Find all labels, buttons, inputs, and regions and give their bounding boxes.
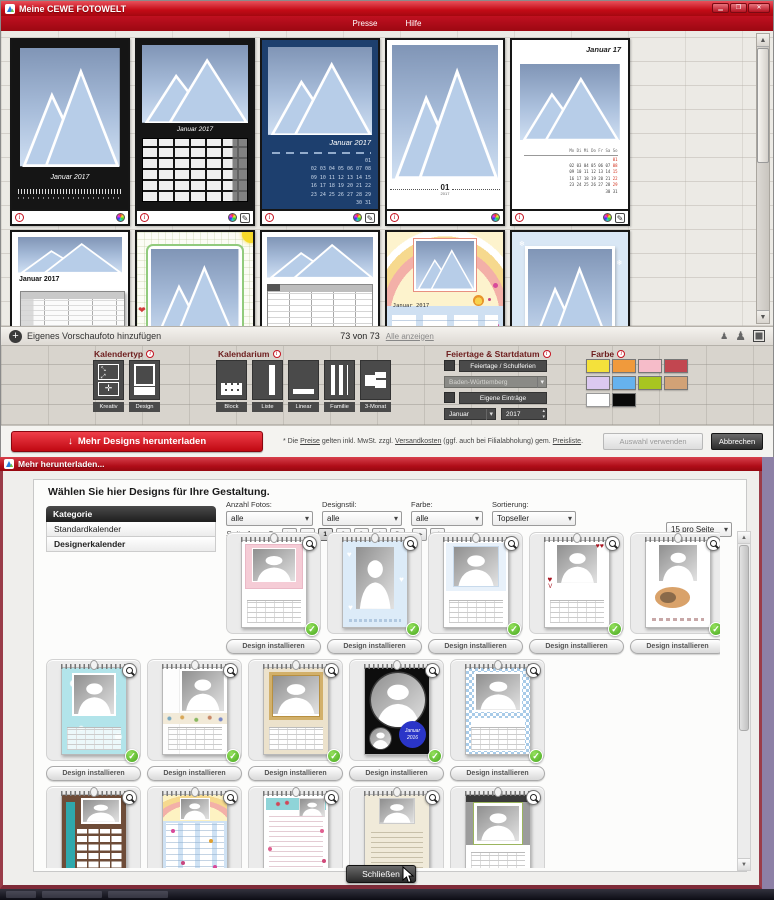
scrollbar-thumb[interactable] <box>757 48 769 163</box>
zoom-design-button[interactable] <box>425 790 440 805</box>
filter-3monat-label[interactable]: 3-Monat <box>360 402 391 412</box>
use-selection-button[interactable]: Auswahl verwenden <box>603 433 703 450</box>
hanger-ring <box>191 660 199 670</box>
show-all-link[interactable]: Alle anzeigen <box>386 332 434 341</box>
start-year-spinner[interactable]: 2017 <box>501 408 547 420</box>
info-icon[interactable]: i <box>140 213 149 222</box>
design-card[interactable]: ✓ <box>450 659 545 761</box>
hanger-ring <box>674 533 682 543</box>
custom-entries-checkbox[interactable] <box>444 392 455 403</box>
calendar-template[interactable]: ❄❄❄❄i✎ <box>510 230 630 326</box>
dialog-scrollbar[interactable]: ▲ ▼ <box>737 531 751 871</box>
filter-3monat[interactable] <box>360 360 391 400</box>
design-card[interactable] <box>450 786 545 868</box>
color-wheel-icon[interactable] <box>353 213 362 222</box>
zoom-design-button[interactable] <box>403 536 418 551</box>
design-card[interactable]: ♥♥♥✓ <box>327 532 422 634</box>
scrollbar-thumb[interactable] <box>739 545 749 731</box>
menu-presse[interactable]: Presse <box>353 19 378 28</box>
menu-hilfe[interactable]: Hilfe <box>405 19 421 28</box>
filter-label: Sortierung: <box>492 500 576 509</box>
scroll-up-icon[interactable]: ▲ <box>738 532 750 544</box>
title-bar[interactable]: Meine CEWE FOTOWELT ▁ ❐ ✕ <box>1 1 773 16</box>
download-more-designs-button[interactable]: ↓Mehr Designs herunterladen <box>11 431 263 452</box>
color-swatch[interactable] <box>612 359 636 373</box>
scroll-down-icon[interactable]: ▼ <box>738 858 750 870</box>
edit-icon[interactable]: ✎ <box>240 213 250 223</box>
filter-linear-label[interactable]: Linear <box>288 402 319 412</box>
category-header: Kategorie <box>46 506 216 522</box>
hanger-ring <box>270 533 278 543</box>
installed-check-icon: ✓ <box>327 749 341 763</box>
designstil-select[interactable]: alle <box>322 511 402 526</box>
template-grid-area: Januar 2017iJanuar 2017i✎Januar 201701 0… <box>1 31 773 326</box>
download-dialog: Mehr herunterladen... Wählen Sie hier De… <box>0 457 762 889</box>
download-icon: ↓ <box>68 436 73 447</box>
filter-linear[interactable] <box>288 360 319 400</box>
magnifier-icon <box>227 667 234 674</box>
zoom-design-button[interactable] <box>526 790 541 805</box>
color-swatch[interactable] <box>638 376 662 390</box>
holidays-button[interactable]: Feiertage / Schulferien <box>459 360 547 372</box>
calendar-template[interactable]: 012017i <box>385 38 505 226</box>
filter-label: Anzahl Fotos: <box>226 500 313 509</box>
dialog-panel: Wählen Sie hier Designs für Ihre Gestalt… <box>33 479 747 872</box>
install-design-button[interactable]: Design installieren <box>248 766 343 781</box>
install-design-button[interactable]: Design installieren <box>147 766 242 781</box>
color-wheel-icon[interactable] <box>603 213 612 222</box>
filter-liste-label[interactable]: Liste <box>252 402 283 412</box>
region-select[interactable]: Baden-Württemberg <box>444 376 547 388</box>
design-card[interactable]: ✓ <box>630 532 720 634</box>
single-view-icon[interactable] <box>753 330 765 342</box>
color-swatch[interactable] <box>664 359 688 373</box>
calendar-template[interactable]: ❤i✎ <box>135 230 255 326</box>
install-design-button[interactable]: Design installieren <box>349 766 444 781</box>
zoom-design-button[interactable] <box>425 663 440 678</box>
price-note: * Die Preise gelten inkl. MwSt. zzgl. Ve… <box>271 438 595 445</box>
scrollbar-vertical[interactable]: ▲ ▼ <box>756 33 770 324</box>
calendar-template[interactable]: Januar 2017i✎ <box>135 38 255 226</box>
magnifier-icon <box>508 540 515 547</box>
color-wheel-icon[interactable] <box>491 213 500 222</box>
zoom-design-button[interactable] <box>324 663 339 678</box>
taskbar[interactable] <box>0 889 774 900</box>
installed-check-icon: ✓ <box>428 749 442 763</box>
filter-familie[interactable] <box>324 360 355 400</box>
color-swatch[interactable] <box>586 393 610 407</box>
info-icon[interactable]: i <box>390 213 399 222</box>
hanger-ring <box>494 787 502 797</box>
kalendarium-label: Kalendariumi <box>218 349 281 359</box>
add-preview-photo-label[interactable]: Eigenes Vorschaufoto hinzufügen <box>27 331 161 341</box>
custom-entries-button[interactable]: Eigene Einträge <box>459 392 547 404</box>
thumbnail-small-icon[interactable]: ♟ <box>720 332 728 341</box>
magnifier-icon <box>710 540 717 547</box>
design-card[interactable]: Januar2016✓ <box>349 659 444 761</box>
preisliste-link[interactable]: Preisliste <box>553 438 581 445</box>
app-icon <box>5 4 15 14</box>
design-card[interactable]: ✓ <box>46 659 141 761</box>
magnifier-icon <box>306 540 313 547</box>
hanger-ring <box>90 660 98 670</box>
magnifier-icon <box>328 794 335 801</box>
filter-design-label[interactable]: Design <box>129 402 160 412</box>
edit-icon[interactable]: ✎ <box>365 213 375 223</box>
filter-liste[interactable] <box>252 360 283 400</box>
magnifier-icon <box>609 540 616 547</box>
magnifier-icon <box>530 794 537 801</box>
maximize-button[interactable]: ❐ <box>730 3 747 13</box>
info-icon[interactable]: i <box>146 350 154 358</box>
versandkosten-link[interactable]: Versandkosten <box>395 438 441 445</box>
info-icon[interactable]: i <box>265 213 274 222</box>
installed-check-icon: ✓ <box>507 622 521 636</box>
hanger-ring <box>573 533 581 543</box>
install-design-button[interactable]: Design installieren <box>46 766 141 781</box>
color-wheel-icon[interactable] <box>116 213 125 222</box>
feiertage-label: Feiertage & Startdatumi <box>446 349 551 359</box>
window-title: Meine CEWE FOTOWELT <box>19 4 126 14</box>
design-tile[interactable]: ♥♥♥✓Design installieren <box>327 532 422 654</box>
design-filters: Anzahl Fotos:alle Designstil:alle Farbe:… <box>226 500 576 526</box>
installed-check-icon: ✓ <box>305 622 319 636</box>
color-swatch[interactable] <box>612 393 636 407</box>
info-icon[interactable]: i <box>543 350 551 358</box>
design-tile[interactable]: ✓Design installieren <box>46 659 141 781</box>
installed-check-icon: ✓ <box>709 622 720 636</box>
design-card[interactable] <box>349 786 444 868</box>
color-swatch[interactable] <box>612 376 636 390</box>
zoom-design-button[interactable] <box>122 663 137 678</box>
design-card[interactable] <box>147 786 242 868</box>
window1-footer: ↓Mehr Designs herunterladen * Die Preise… <box>1 425 773 457</box>
install-design-button[interactable]: Design installieren <box>428 639 523 654</box>
installed-check-icon: ✓ <box>608 622 622 636</box>
calendar-template[interactable]: i✎ <box>260 230 380 326</box>
template-grid: Januar 2017iJanuar 2017i✎Januar 201701 0… <box>1 31 773 326</box>
design-tile[interactable]: ✓Design installieren <box>147 659 242 781</box>
design-tile[interactable]: Design installieren <box>450 786 545 868</box>
filter-label: Farbe: <box>411 500 483 509</box>
close-button[interactable]: ✕ <box>748 3 770 13</box>
holidays-checkbox[interactable] <box>444 360 455 371</box>
installed-check-icon: ✓ <box>529 749 543 763</box>
design-card[interactable]: ✓ <box>226 532 321 634</box>
filter-kreativ[interactable]: ✛ <box>93 360 124 400</box>
magnifier-icon <box>429 794 436 801</box>
design-tile[interactable]: ✓Design installieren <box>248 659 343 781</box>
hanger-ring <box>494 660 502 670</box>
design-card[interactable]: ✓ <box>147 659 242 761</box>
dialog-title: Mehr herunterladen... <box>18 459 104 469</box>
hanger-ring <box>191 787 199 797</box>
add-icon[interactable]: + <box>9 330 22 343</box>
info-icon[interactable]: i <box>617 350 625 358</box>
magnifier-icon <box>227 794 234 801</box>
magnifier-icon <box>126 667 133 674</box>
installed-check-icon: ✓ <box>125 749 139 763</box>
color-swatch[interactable] <box>586 359 610 373</box>
mouse-cursor <box>402 866 414 889</box>
install-design-button[interactable]: Design installieren <box>327 639 422 654</box>
zoom-design-button[interactable] <box>504 536 519 551</box>
filter-panel: Kalendertypi ✛ Kreativ Design Kalendariu… <box>1 346 773 425</box>
dialog-heading: Wählen Sie hier Designs für Ihre Gestalt… <box>48 486 270 498</box>
minimize-button[interactable]: ▁ <box>712 3 729 13</box>
zoom-design-button[interactable] <box>526 663 541 678</box>
hanger-ring <box>292 787 300 797</box>
filter-block-label[interactable]: Block <box>216 402 247 412</box>
zoom-design-button[interactable] <box>122 790 137 805</box>
installed-check-icon: ✓ <box>226 749 240 763</box>
color-swatch[interactable] <box>638 359 662 373</box>
magnifier-icon <box>530 667 537 674</box>
filter-design[interactable] <box>129 360 160 400</box>
filter-label: Designstil: <box>322 500 402 509</box>
design-tile[interactable]: Design installieren <box>248 786 343 868</box>
install-design-button[interactable]: Design installieren <box>630 639 720 654</box>
magnifier-icon <box>126 794 133 801</box>
install-design-button[interactable]: Design installieren <box>450 766 545 781</box>
hanger-ring <box>292 660 300 670</box>
calendar-template[interactable]: Januar 17Mo Di Mi Do Fr Sa So0102 03 04 … <box>510 38 630 226</box>
hanger-ring <box>90 787 98 797</box>
design-card[interactable] <box>46 786 141 868</box>
zoom-design-button[interactable] <box>302 536 317 551</box>
preview-toolbar: + Eigenes Vorschaufoto hinzufügen 73 von… <box>1 326 773 346</box>
scroll-up-icon[interactable]: ▲ <box>757 34 769 47</box>
design-tile[interactable]: Design installieren <box>147 786 242 868</box>
color-wheel-icon[interactable] <box>228 213 237 222</box>
zoom-design-button[interactable] <box>223 790 238 805</box>
preise-link[interactable]: Preise <box>300 438 320 445</box>
design-tile[interactable]: ✓Design installieren <box>630 532 720 654</box>
magnifier-icon <box>328 667 335 674</box>
thumbnail-large-icon[interactable]: ♟ <box>735 330 746 342</box>
design-card[interactable]: ✓ <box>428 532 523 634</box>
anzahl-fotos-select[interactable]: alle <box>226 511 313 526</box>
install-design-button[interactable]: Design installieren <box>529 639 624 654</box>
hanger-ring <box>393 787 401 797</box>
calendar-template[interactable]: Januar 2017i✎ <box>385 230 505 326</box>
info-icon[interactable]: i <box>273 350 281 358</box>
farbe-label: Farbei <box>591 349 625 359</box>
calendar-template[interactable]: Januar 201701 02 03 04 05 06 07 08 09 10… <box>260 38 380 226</box>
design-tile[interactable]: ✓Design installieren <box>226 532 321 654</box>
install-design-button[interactable]: Design installieren <box>226 639 321 654</box>
color-swatch[interactable] <box>664 376 688 390</box>
design-tile[interactable]: ♥♥♥V✓Design installieren <box>529 532 624 654</box>
design-tile[interactable]: ✓Design installieren <box>428 532 523 654</box>
magnifier-icon <box>407 540 414 547</box>
design-tile[interactable]: ✓Design installieren <box>450 659 545 781</box>
zoom-design-button[interactable] <box>706 536 720 551</box>
menu-bar: Presse Hilfe <box>1 16 773 31</box>
design-grid: ✓Design installieren♥♥♥✓Design installie… <box>46 532 720 868</box>
hanger-ring <box>472 533 480 543</box>
filter-familie-label[interactable]: Familie <box>324 402 355 412</box>
zoom-design-button[interactable] <box>324 790 339 805</box>
calendar-template[interactable]: Januar 2017i <box>10 38 130 226</box>
dialog-title-bar[interactable]: Mehr herunterladen... <box>0 457 762 471</box>
kalendertyp-label: Kalendertypi <box>94 349 154 359</box>
design-card[interactable] <box>248 786 343 868</box>
farbe-select[interactable]: alle <box>411 511 483 526</box>
filter-kreativ-label[interactable]: Kreativ <box>93 402 124 412</box>
info-icon[interactable]: i <box>515 213 524 222</box>
installed-check-icon: ✓ <box>406 622 420 636</box>
zoom-design-button[interactable] <box>605 536 620 551</box>
filter-block[interactable] <box>216 360 247 400</box>
cancel-button[interactable]: Abbrechen <box>711 433 763 450</box>
magnifier-icon <box>429 667 436 674</box>
result-count: 73 von 73 <box>340 331 380 341</box>
design-tile[interactable]: Design installieren <box>46 786 141 868</box>
info-icon[interactable]: i <box>15 213 24 222</box>
zoom-design-button[interactable] <box>223 663 238 678</box>
calendar-template[interactable]: Januar 2017i✎ <box>10 230 130 326</box>
hanger-ring <box>371 533 379 543</box>
edit-icon[interactable]: ✎ <box>615 213 625 223</box>
start-month-select[interactable]: Januar <box>444 408 496 420</box>
design-tile[interactable]: Design installieren <box>349 786 444 868</box>
color-swatch[interactable] <box>586 376 610 390</box>
sortierung-select[interactable]: Topseller <box>492 511 576 526</box>
scroll-down-icon[interactable]: ▼ <box>757 310 769 323</box>
dialog-icon <box>4 459 14 469</box>
design-card[interactable]: ✓ <box>248 659 343 761</box>
main-window: Meine CEWE FOTOWELT ▁ ❐ ✕ Presse Hilfe J… <box>0 0 774 457</box>
design-tile[interactable]: Januar2016✓Design installieren <box>349 659 444 781</box>
hanger-ring <box>393 660 401 670</box>
design-card[interactable]: ♥♥♥V✓ <box>529 532 624 634</box>
